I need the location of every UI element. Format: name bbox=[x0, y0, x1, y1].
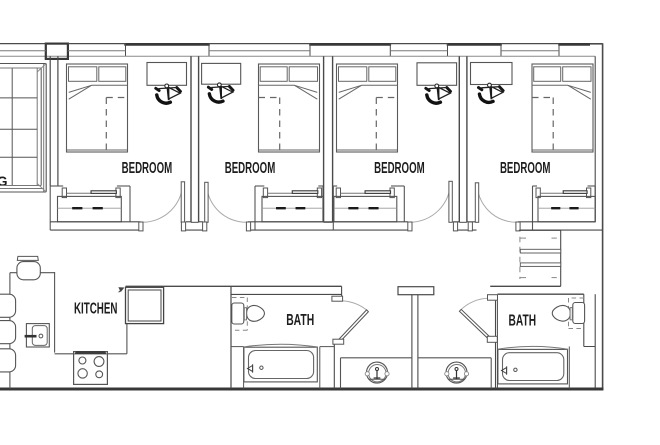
svg-text:BEDROOM: BEDROOM bbox=[500, 160, 551, 177]
svg-text:BEDROOM: BEDROOM bbox=[122, 160, 173, 177]
svg-text:BEDROOM: BEDROOM bbox=[225, 160, 276, 177]
svg-text:BATH: BATH bbox=[286, 312, 314, 329]
svg-text:BATH: BATH bbox=[509, 313, 537, 330]
svg-text:G: G bbox=[0, 174, 7, 189]
svg-text:KITCHEN: KITCHEN bbox=[74, 300, 118, 317]
svg-text:BEDROOM: BEDROOM bbox=[374, 160, 425, 177]
